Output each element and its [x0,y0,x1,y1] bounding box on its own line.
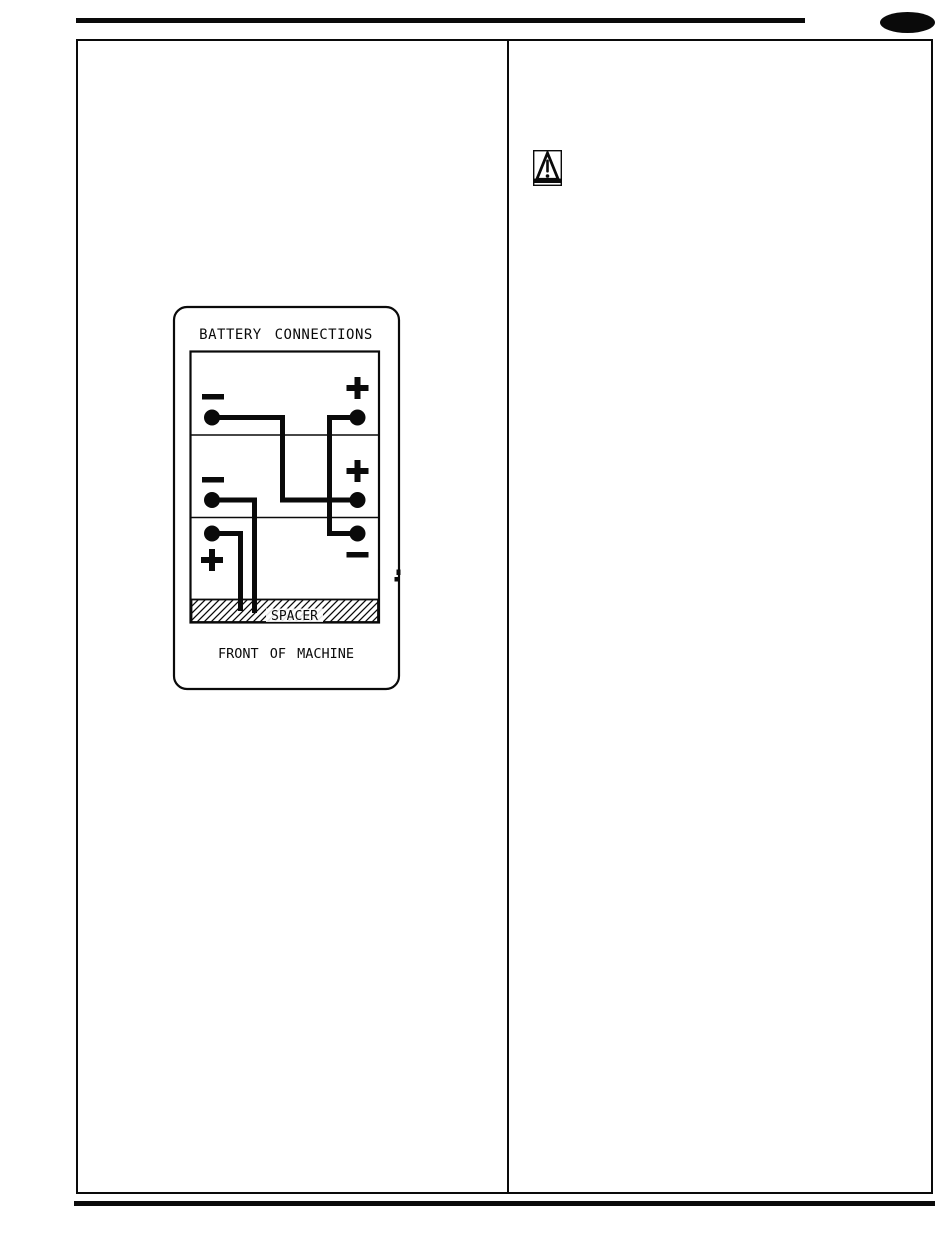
diagram-caption: FRONT OF MACHINE [218,646,354,662]
warning-triangle-icon [533,150,562,186]
diagram-title: BATTERY CONNECTIONS [199,327,373,343]
minus-terminal-icon [347,552,369,558]
spacer-label: SPACER [271,609,318,624]
terminal-post [350,492,366,508]
terminal-post [350,410,366,426]
minus-terminal-icon [202,394,224,400]
exclamation-dot-icon [546,174,550,178]
footer-rule [74,1201,935,1206]
terminal-post [204,526,220,542]
battery-connections-diagram: BATTERY CONNECTIONS SPACE [160,295,410,705]
exclamation-bar-icon [546,160,549,173]
minus-terminal-icon [202,477,224,483]
terminal-post [204,410,220,426]
terminal-post [204,492,220,508]
warning-triangle-base-bar [534,179,562,183]
column-divider [507,39,509,1194]
page-marker-ellipse-icon [880,12,935,33]
terminal-post [350,526,366,542]
header-rule [76,18,805,23]
